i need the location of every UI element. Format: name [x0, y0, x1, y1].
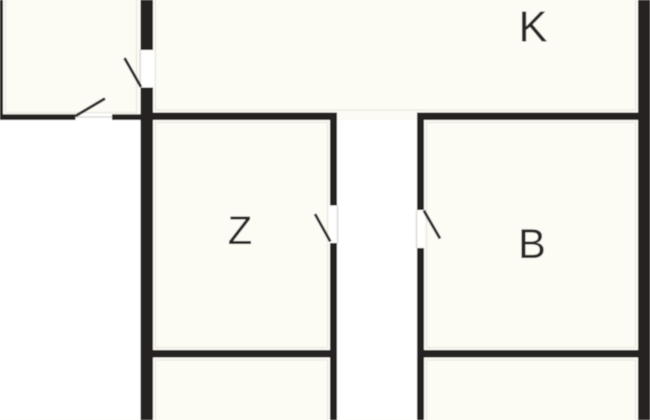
svg-text:B: B: [518, 220, 546, 267]
svg-text:Z: Z: [228, 209, 252, 253]
svg-text:K: K: [518, 3, 547, 51]
